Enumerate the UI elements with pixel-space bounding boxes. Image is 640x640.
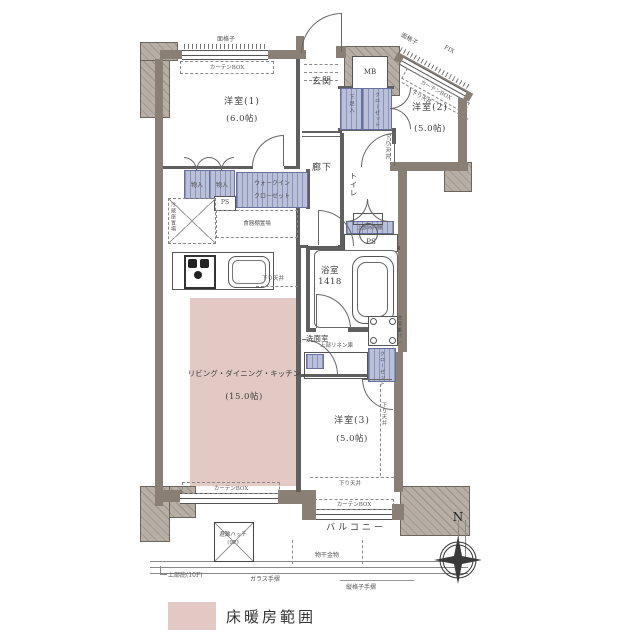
- storage-label: 物入: [216, 180, 228, 189]
- glass-rail-label: ガラス手摺: [250, 574, 280, 583]
- partition: [296, 392, 301, 492]
- storage-monoire: 物入: [209, 170, 235, 199]
- entry-step: [302, 131, 342, 133]
- room-label-entry: 玄関: [312, 74, 332, 87]
- pan-corner: [370, 318, 377, 325]
- wall: [160, 50, 184, 59]
- room-size-ldk: (15.0帖): [225, 390, 263, 402]
- room-label-corridor: 廊下: [312, 160, 332, 173]
- room-size-bedroom2: (5.0帖): [414, 122, 446, 134]
- wall: [155, 59, 163, 506]
- bedroom1-door-arc: [252, 135, 284, 167]
- shoe-cabinet: 下足入: [340, 88, 362, 130]
- wic-label-1: ウォークイン: [254, 178, 290, 187]
- laundry-pole-mark: [362, 540, 363, 564]
- bathtub-inner: [357, 262, 388, 317]
- curtain-box-label: カーテンBOX: [337, 500, 371, 508]
- room-label-bedroom3: 洋室(3): [334, 413, 370, 426]
- room-size-bedroom1: (6.0帖): [226, 112, 258, 124]
- room-label-toilet: トイレ: [348, 172, 359, 198]
- pan-corner: [389, 337, 396, 344]
- entry-tile-line: [304, 72, 338, 73]
- lattice-rail-label: 縦格子手摺: [346, 582, 376, 591]
- bath-size: 1418: [318, 277, 342, 287]
- curtain-box: カーテンBOX: [182, 482, 280, 494]
- cupboard-space: 食器棚置場: [216, 210, 298, 238]
- cupboard-space-label: 食器棚置場: [243, 219, 271, 227]
- partition: [296, 59, 300, 169]
- washer-pan-label: 洗濯機パン: [396, 315, 403, 345]
- burner: [200, 259, 209, 268]
- shoe-cabinet-label: 下足入: [347, 94, 355, 114]
- grille-label: 面格子: [217, 34, 235, 43]
- hall-closet-door-arc: [390, 108, 411, 129]
- dropped-ceiling-line: [310, 477, 394, 478]
- monoire-door-arc: [221, 157, 234, 171]
- window: [180, 493, 278, 504]
- partition: [306, 250, 310, 330]
- grille-label: 面格子: [400, 30, 420, 47]
- dropped-ceiling-label: 下り天井: [339, 479, 361, 487]
- window: [316, 509, 392, 520]
- evac-hatch-label: 避難ハッチ: [219, 530, 247, 538]
- monoire-door-arc: [196, 157, 209, 171]
- hall-closet-door-arc: [390, 88, 411, 109]
- linen-label: 上部リネン庫: [320, 341, 353, 349]
- compass-north-label: N: [453, 510, 464, 524]
- curtain-box: カーテンBOX: [314, 499, 394, 510]
- compass: N: [428, 510, 488, 594]
- floor-plan: カーテンBOX カーテンBOX カーテンBOX カーテンBOX MB 物入 物入…: [0, 0, 640, 640]
- fix-window-label: FIX: [443, 44, 456, 55]
- room-label-ldk: リビング・ダイニング・キッチン: [188, 368, 301, 379]
- entry-tile-line: [304, 64, 338, 65]
- hall-closet-label: クローゼット: [374, 92, 381, 128]
- partition: [284, 166, 298, 169]
- lattice-rail-leader: [340, 580, 414, 581]
- pipe-space: PS: [214, 196, 236, 211]
- room-label-bedroom1: 洋室(1): [224, 94, 260, 107]
- wall: [390, 162, 468, 171]
- curtain-box-label: カーテンBOX: [210, 63, 244, 71]
- evac-hatch-floor: (9F): [227, 540, 239, 546]
- stove: [184, 255, 216, 289]
- dropped-ceiling-line: [256, 286, 298, 287]
- partition: [306, 328, 316, 332]
- washer-pan: [368, 316, 398, 346]
- pan-corner: [370, 337, 377, 344]
- dropped-ceiling-label: 下り天井: [383, 134, 391, 160]
- room-label-balcony: バルコニー: [326, 520, 386, 533]
- laundry-pole-mark: [292, 540, 293, 564]
- meter-box-label: MB: [364, 68, 376, 76]
- storage-monoire: 物入: [184, 170, 210, 199]
- fridge-space-label: 冷蔵庫置場: [170, 202, 177, 232]
- fridge-space: 冷蔵庫置場: [168, 198, 216, 244]
- dropped-ceiling-line: [380, 384, 381, 476]
- dropped-ceiling-label: 下り天井: [381, 402, 388, 426]
- curtain-box-label: カーテンBOX: [214, 484, 248, 492]
- curtain-box: カーテンBOX: [180, 61, 274, 74]
- hall-closet: クローゼット: [362, 88, 392, 130]
- window: [182, 50, 268, 60]
- laundry-hardware-label: 物干金物: [315, 550, 339, 559]
- eave-leader: [160, 566, 167, 575]
- bathtub: [352, 256, 394, 324]
- storage-label: 物入: [191, 180, 203, 189]
- entry-step-line: [302, 136, 342, 137]
- bath-door-leaf: [316, 294, 317, 328]
- walk-in-closet: ウォークイン クローゼット: [236, 172, 308, 208]
- eave-label: 上部庇(10F): [168, 570, 202, 579]
- legend-label: 床暖房範囲: [226, 606, 316, 627]
- bedroom3-door-arc: [362, 379, 393, 410]
- room-label-bath: 浴室: [321, 264, 339, 276]
- bedroom3-closet: クローゼット: [368, 348, 396, 382]
- legend-swatch: [168, 602, 216, 630]
- pan-corner: [389, 318, 396, 325]
- kitchen-sink: [228, 256, 270, 288]
- toilet-bowl: [359, 223, 378, 244]
- burner: [188, 259, 197, 268]
- entry-door-arc: [301, 13, 342, 53]
- meter-box: MB: [352, 56, 388, 90]
- burner: [194, 271, 202, 279]
- wic-label-2: クローゼット: [254, 191, 290, 200]
- ps-label: PS: [221, 199, 229, 206]
- sink-basin: [232, 260, 266, 284]
- window-grille: [184, 44, 268, 49]
- dropped-ceiling-label: 下り天井: [262, 274, 284, 282]
- room-size-bedroom3: (5.0帖): [336, 432, 368, 444]
